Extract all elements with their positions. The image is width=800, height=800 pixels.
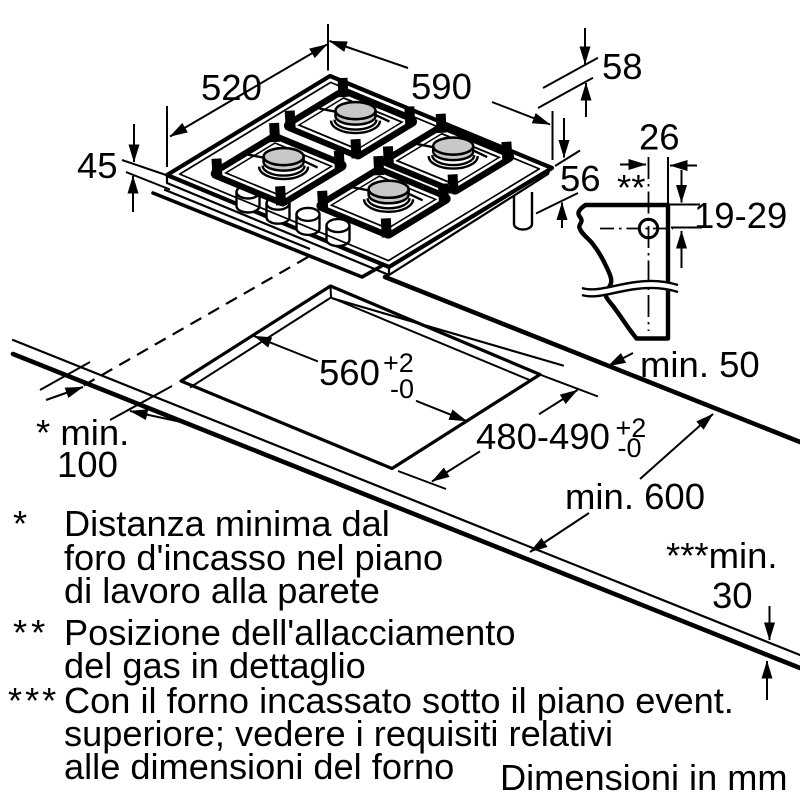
svg-text:-0: -0 [618, 433, 642, 463]
svg-text:520: 520 [201, 67, 262, 108]
svg-text:***: *** [8, 680, 59, 721]
svg-text:**: ** [617, 167, 645, 208]
svg-text:30: 30 [712, 575, 753, 616]
svg-text:**: ** [13, 612, 49, 653]
svg-text:26: 26 [639, 117, 680, 158]
svg-text:***min.: ***min. [666, 535, 778, 576]
svg-text:480-490: 480-490 [476, 416, 610, 457]
svg-text:19-29: 19-29 [694, 195, 787, 236]
svg-text:56: 56 [560, 158, 601, 199]
svg-text:di lavoro alla parete: di lavoro alla parete [64, 570, 380, 611]
svg-text:min. 600: min. 600 [565, 476, 705, 517]
svg-text:alle dimensioni del forno: alle dimensioni del forno [64, 746, 454, 787]
svg-text:*: * [13, 503, 27, 544]
svg-text:100: 100 [57, 444, 118, 485]
svg-text:590: 590 [411, 66, 472, 107]
svg-text:min. 50: min. 50 [640, 344, 760, 385]
svg-text:560: 560 [319, 352, 380, 393]
svg-text:45: 45 [77, 145, 118, 186]
svg-text:58: 58 [602, 46, 643, 87]
svg-text:Dimensioni in mm: Dimensioni in mm [500, 757, 788, 798]
svg-text:-0: -0 [390, 374, 414, 404]
